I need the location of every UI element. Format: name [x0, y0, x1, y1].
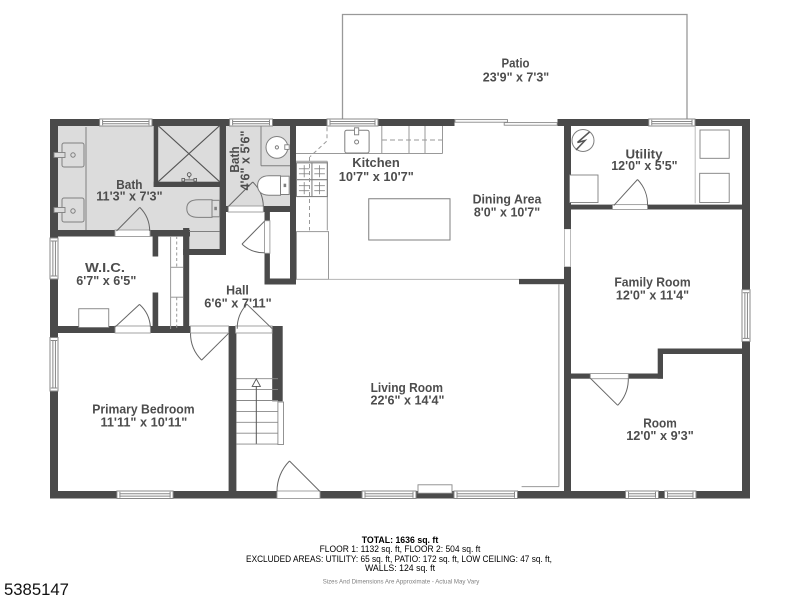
svg-text:Kitchen: Kitchen: [352, 155, 400, 170]
svg-text:Patio: Patio: [502, 56, 530, 71]
svg-text:4'6" x 5'6": 4'6" x 5'6": [238, 131, 253, 191]
svg-text:11'3" x 7'3": 11'3" x 7'3": [96, 189, 162, 204]
svg-text:11'11" x 10'11": 11'11" x 10'11": [100, 414, 187, 429]
svg-text:10'7" x 10'7": 10'7" x 10'7": [339, 169, 414, 184]
svg-text:12'0" x 9'3": 12'0" x 9'3": [626, 428, 694, 443]
svg-text:22'6" x 14'4": 22'6" x 14'4": [371, 393, 445, 408]
svg-text:Sizes And Dimensions Are Appro: Sizes And Dimensions Are Approximate - A…: [323, 578, 480, 585]
svg-text:8'0" x 10'7": 8'0" x 10'7": [474, 205, 540, 220]
svg-text:12'0" x 5'5": 12'0" x 5'5": [611, 158, 677, 173]
svg-text:6'6" x 7'11": 6'6" x 7'11": [204, 296, 271, 311]
svg-text:WALLS: 124 sq. ft: WALLS: 124 sq. ft: [365, 563, 435, 574]
svg-text:23'9" x 7'3": 23'9" x 7'3": [483, 70, 550, 85]
svg-text:6'7" x 6'5": 6'7" x 6'5": [76, 273, 136, 288]
svg-text:5385147: 5385147: [4, 580, 69, 599]
svg-text:12'0" x 11'4": 12'0" x 11'4": [616, 288, 689, 303]
